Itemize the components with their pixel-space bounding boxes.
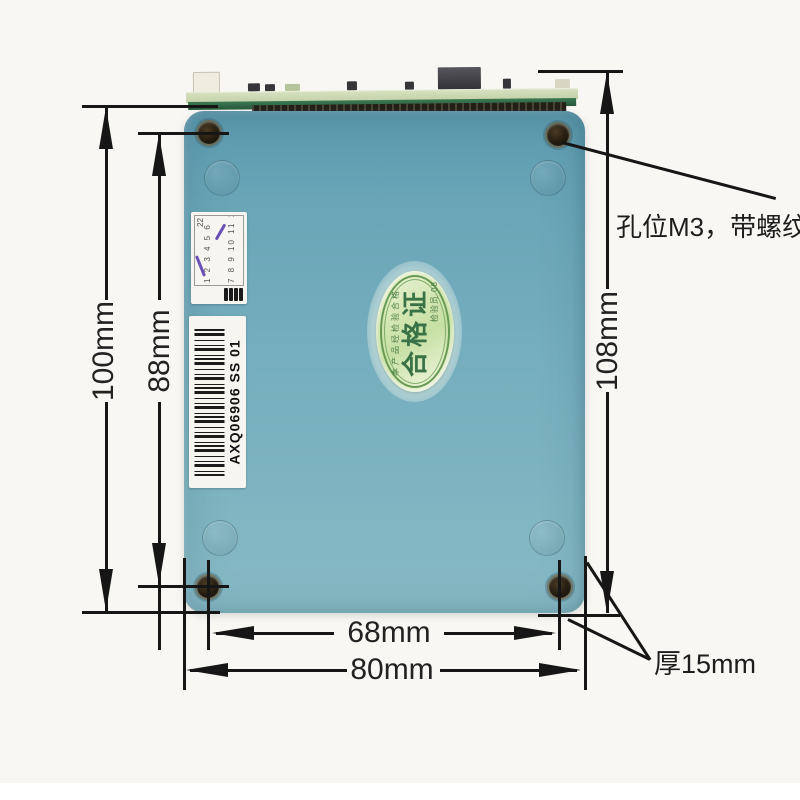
dim-68-arrow-left: [212, 626, 254, 640]
pcb-edge-view: [186, 64, 578, 116]
dim-108-label: 108mm: [591, 291, 625, 391]
hole-note-leader: [562, 141, 777, 200]
dim-100-arrow-down: [99, 569, 113, 611]
qc-grid-sticker: 22 1 2 3 4 5 6 7 8 9 10 11 12: [191, 212, 247, 304]
dim-88-arrow-down: [152, 543, 166, 585]
dim-108-bottom-tick: [538, 614, 620, 617]
foot-recess-top-right: [530, 160, 566, 196]
qc-sticker-mark: 22: [196, 218, 205, 227]
qc-sticker-row2: 7 8 9 10 11 12: [227, 216, 236, 285]
barcode: [194, 328, 224, 476]
pcb-component: [503, 79, 511, 89]
dim-80-arrow-left: [186, 663, 228, 677]
dim-68-left-tick: [207, 560, 210, 650]
dim-68-label: 68mm: [347, 616, 430, 650]
pcb-white-connector: [193, 72, 220, 94]
seal-title: 合格证: [401, 287, 429, 377]
thickness-note: 厚15mm: [654, 642, 756, 681]
conformity-seal: 本产品经检验合格 合格证 检验员 08: [376, 271, 454, 392]
dim-100-label: 100mm: [87, 301, 121, 401]
pcb-component: [248, 83, 260, 91]
qc-sticker-logo: [193, 287, 245, 302]
dim-100-arrow-up: [99, 107, 113, 149]
foot-recess-bottom-left: [202, 520, 238, 556]
dim-100-bottom-tick: [82, 611, 220, 614]
barcode-sticker: AXQ06906 SS 01: [189, 316, 246, 488]
barcode-text: AXQ06906 SS 01: [226, 326, 242, 478]
pcb-component: [555, 79, 570, 88]
product-dimension-diagram: 22 1 2 3 4 5 6 7 8 9 10 11 12 AXQ06906 S…: [0, 0, 800, 800]
pcb-dark-connector: [438, 67, 481, 89]
bottom-white-strip: [0, 783, 800, 800]
pcb-component: [405, 82, 414, 90]
qc-pen-mark: [215, 223, 227, 240]
seal-inspector: 检验员 08: [429, 281, 440, 322]
dim-80-arrow-right: [539, 663, 581, 677]
pcb-component: [347, 81, 357, 90]
dim-88-arrow-up: [152, 134, 166, 176]
dim-88-label: 88mm: [143, 309, 177, 392]
dim-80-right-tick: [584, 556, 587, 690]
dim-68-arrow-right: [514, 626, 556, 640]
foot-recess-top-left: [204, 160, 240, 196]
dim-88-line-lower: [158, 402, 161, 650]
dim-108-arrow-up: [600, 72, 614, 114]
hole-note: 孔位M3，带螺纹: [616, 207, 800, 244]
dim-68-right-tick: [558, 560, 561, 650]
dim-80-label: 80mm: [350, 653, 433, 687]
foot-recess-bottom-right: [529, 520, 565, 556]
